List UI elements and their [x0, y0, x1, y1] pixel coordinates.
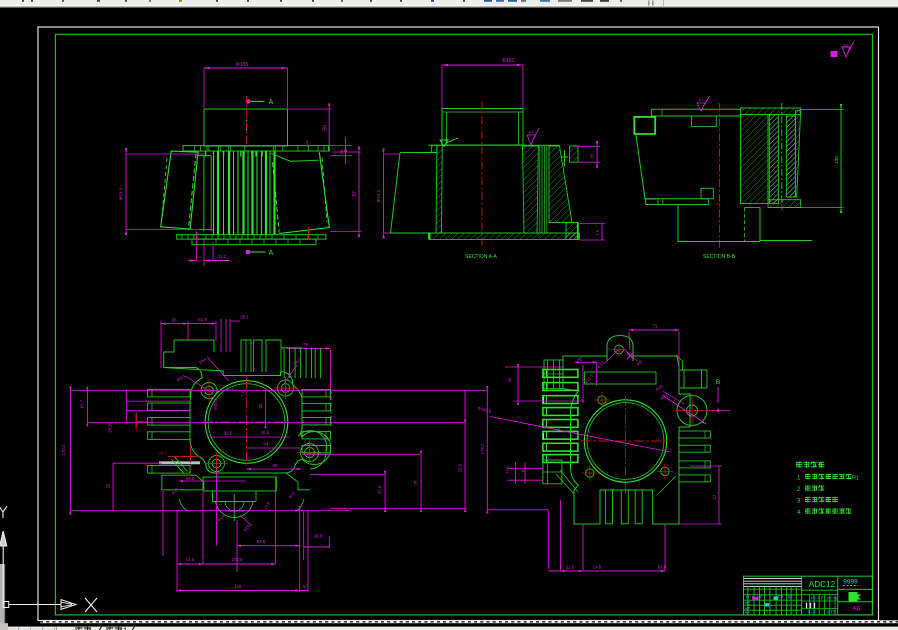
svg-text:79: 79: [413, 480, 418, 485]
svg-text:HE: HE: [745, 600, 751, 605]
svg-text:26.56: 26.56: [108, 422, 113, 433]
svg-text:Φ53.3: Φ53.3: [376, 189, 381, 202]
svg-text:11.2: 11.2: [218, 254, 227, 259]
svg-text:79: 79: [303, 342, 309, 347]
svg-text:65: 65: [171, 318, 177, 323]
svg-text:4 F 4 F: 4 F 4 F: [810, 595, 824, 600]
svg-text:3: 3: [797, 498, 801, 505]
svg-text:SECTION A-A: SECTION A-A: [465, 254, 497, 260]
svg-text:32.5: 32.5: [224, 431, 233, 436]
svg-text:27: 27: [712, 494, 717, 499]
svg-text:A: A: [269, 250, 274, 257]
svg-text:64: 64: [264, 442, 269, 447]
svg-text:65.7: 65.7: [80, 399, 85, 408]
svg-text:R1: R1: [852, 476, 859, 482]
svg-text:97: 97: [352, 191, 358, 197]
svg-text:35.8: 35.8: [261, 431, 270, 436]
svg-text:Φ53.3: Φ53.3: [119, 187, 124, 200]
svg-text:176.2: 176.2: [480, 443, 485, 454]
svg-text:A0: A0: [852, 606, 860, 613]
svg-text:29: 29: [106, 483, 111, 488]
svg-text:R0.4: R0.4: [159, 452, 167, 456]
svg-text:45: 45: [578, 357, 583, 362]
svg-text:23.2: 23.2: [505, 465, 510, 474]
svg-text:SECTION B-B: SECTION B-B: [703, 254, 736, 260]
svg-text:14.5: 14.5: [186, 557, 195, 562]
svg-text:27: 27: [827, 595, 832, 600]
svg-text:3 TT: 3 TT: [827, 610, 836, 615]
svg-text:1: 1: [797, 475, 801, 482]
svg-text:24.5: 24.5: [593, 565, 602, 570]
svg-text:37.6: 37.6: [377, 485, 382, 494]
svg-text:A: A: [269, 99, 274, 106]
svg-text:9999: 9999: [843, 579, 858, 586]
svg-text:71: 71: [653, 324, 658, 329]
svg-text:55: 55: [507, 377, 512, 382]
svg-text:1: 1: [123, 627, 128, 630]
svg-text:58.9: 58.9: [186, 476, 195, 481]
svg-text:Φ40.6: Φ40.6: [213, 398, 218, 410]
svg-text:4: 4: [797, 509, 801, 516]
svg-text:25: 25: [590, 153, 595, 159]
svg-text:52.8: 52.8: [257, 539, 266, 544]
svg-text:80: 80: [273, 463, 278, 468]
svg-text:130: 130: [834, 156, 839, 164]
svg-text:AF: AF: [745, 610, 751, 615]
svg-text:28.8: 28.8: [314, 534, 323, 539]
svg-text:61.9: 61.9: [198, 317, 207, 322]
svg-text:Φ105: Φ105: [236, 62, 249, 68]
svg-text:Φ102: Φ102: [502, 58, 515, 64]
svg-text:104.5: 104.5: [232, 557, 244, 562]
svg-text:F3: F3: [778, 595, 784, 600]
svg-text:50: 50: [258, 403, 263, 408]
svg-text:11.5: 11.5: [566, 565, 575, 570]
svg-text:6.3: 6.3: [699, 98, 704, 102]
svg-text:30.4: 30.4: [226, 386, 235, 391]
svg-text:F | F: F | F: [808, 610, 817, 615]
svg-text:57.8: 57.8: [658, 565, 667, 570]
svg-text:B: B: [716, 379, 720, 386]
svg-text:9F: 9F: [788, 595, 793, 600]
svg-text:170.2: 170.2: [61, 444, 66, 456]
svg-text:116: 116: [235, 584, 243, 589]
svg-text:38.1: 38.1: [240, 315, 249, 320]
svg-text:50: 50: [323, 125, 329, 131]
svg-text:ADC12: ADC12: [809, 580, 836, 589]
svg-text:6.3: 6.3: [529, 130, 534, 134]
svg-text:7.5: 7.5: [595, 229, 600, 235]
svg-text:†: †: [766, 609, 768, 614]
svg-text:H: H: [746, 595, 749, 600]
svg-text:25.6: 25.6: [458, 463, 463, 472]
svg-text:7.6: 7.6: [240, 390, 245, 396]
svg-text:6.3: 6.3: [844, 44, 849, 48]
svg-text:2: 2: [797, 486, 801, 493]
svg-text:78: 78: [833, 595, 838, 600]
